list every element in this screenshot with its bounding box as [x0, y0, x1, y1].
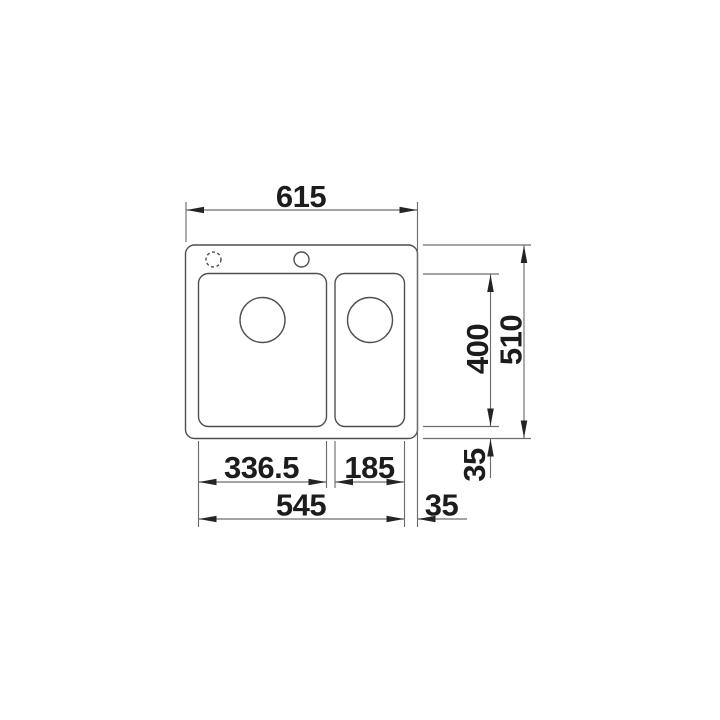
arrow-545-left	[199, 516, 217, 523]
arrow-336-right	[309, 479, 327, 486]
arrow-510-top	[521, 246, 528, 264]
half-bowl-drain-circle	[348, 298, 393, 343]
arrow-615-left	[187, 207, 205, 214]
tap-hole	[294, 252, 309, 267]
arrow-615-right	[400, 207, 418, 214]
main-bowl-outline	[199, 274, 327, 427]
label-overall-depth: 510	[494, 315, 529, 365]
label-main-bowl-width: 336.5	[224, 450, 299, 485]
label-front-rim-depth: 35	[457, 448, 492, 482]
label-bowl-depth: 400	[460, 324, 495, 374]
drawing-svg: 615 336.5 185 545 35 400 510 35	[0, 0, 720, 720]
arrow-510-bottom	[521, 421, 528, 439]
label-overall-width: 615	[276, 179, 326, 214]
arrow-545-right	[387, 516, 405, 523]
arrow-400-top	[487, 275, 494, 293]
arrow-400-bottom	[487, 409, 494, 427]
half-bowl-outline	[335, 274, 405, 427]
sink-body	[186, 245, 418, 439]
label-bowls-overall-width: 545	[276, 488, 326, 523]
tap-hole-optional-dashed	[206, 252, 221, 267]
label-half-bowl-width: 185	[344, 450, 394, 485]
sink-dimension-drawing: 615 336.5 185 545 35 400 510 35	[0, 0, 720, 720]
label-right-rim-width: 35	[425, 488, 459, 523]
main-bowl-drain-circle	[240, 298, 285, 343]
arrow-336-left	[199, 479, 217, 486]
